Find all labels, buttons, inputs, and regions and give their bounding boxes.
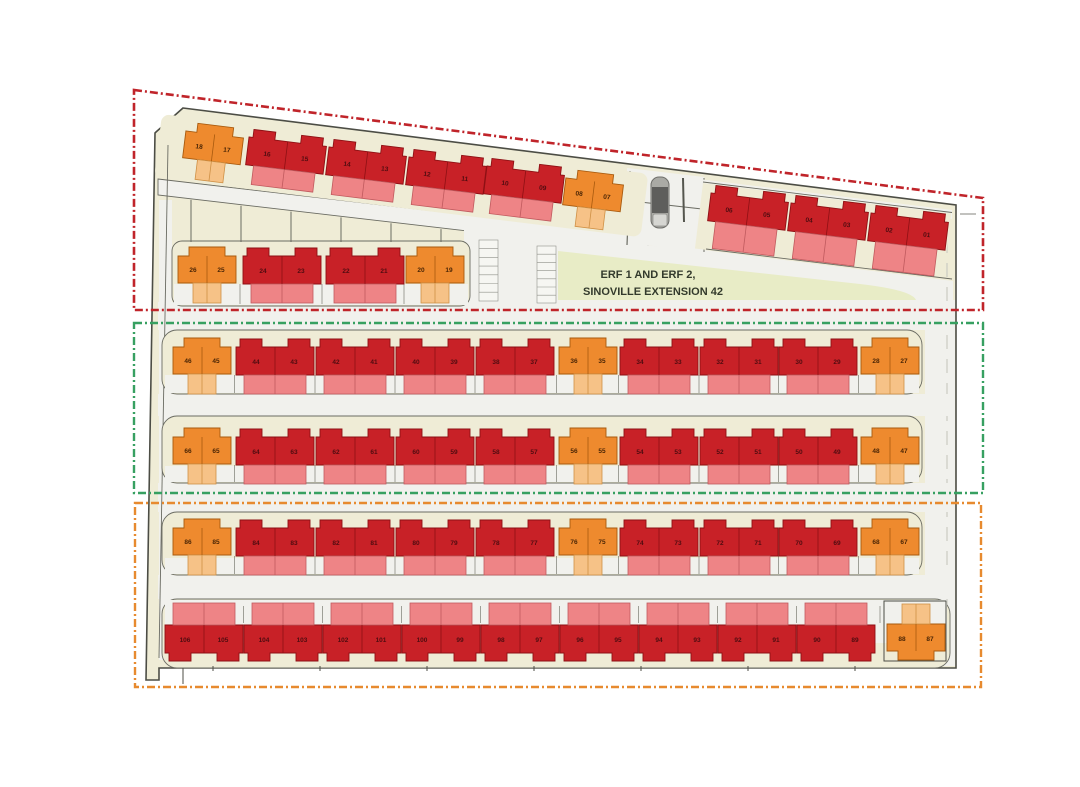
svg-text:25: 25 <box>217 267 225 274</box>
svg-text:47: 47 <box>900 448 908 455</box>
svg-text:64: 64 <box>252 449 260 456</box>
svg-text:33: 33 <box>674 359 682 366</box>
svg-text:20: 20 <box>417 267 425 274</box>
svg-text:51: 51 <box>754 449 762 456</box>
svg-text:79: 79 <box>450 540 458 547</box>
svg-text:22: 22 <box>342 268 350 275</box>
svg-text:50: 50 <box>795 449 803 456</box>
svg-text:46: 46 <box>184 358 192 365</box>
svg-text:48: 48 <box>872 448 880 455</box>
svg-text:32: 32 <box>716 359 724 366</box>
svg-text:21: 21 <box>380 268 388 275</box>
svg-text:69: 69 <box>833 540 841 547</box>
svg-text:90: 90 <box>813 637 821 644</box>
svg-text:86: 86 <box>184 539 192 546</box>
svg-text:28: 28 <box>872 358 880 365</box>
svg-text:72: 72 <box>716 540 724 547</box>
svg-text:24: 24 <box>259 268 267 275</box>
svg-text:83: 83 <box>290 540 298 547</box>
svg-text:65: 65 <box>212 448 220 455</box>
svg-text:60: 60 <box>412 449 420 456</box>
svg-text:61: 61 <box>370 449 378 456</box>
svg-text:100: 100 <box>417 637 428 644</box>
svg-text:16: 16 <box>263 151 271 159</box>
svg-text:76: 76 <box>570 539 578 546</box>
svg-text:75: 75 <box>598 539 606 546</box>
svg-text:11: 11 <box>461 176 469 184</box>
svg-text:26: 26 <box>189 267 197 274</box>
svg-text:07: 07 <box>603 194 611 202</box>
svg-text:27: 27 <box>900 358 908 365</box>
svg-text:34: 34 <box>636 359 644 366</box>
svg-text:36: 36 <box>570 358 578 365</box>
svg-text:94: 94 <box>655 637 663 644</box>
svg-text:98: 98 <box>497 637 505 644</box>
svg-text:08: 08 <box>575 190 583 198</box>
svg-text:88: 88 <box>898 636 906 643</box>
svg-text:67: 67 <box>900 539 908 546</box>
svg-text:104: 104 <box>259 637 270 644</box>
svg-text:14: 14 <box>343 161 351 169</box>
svg-text:58: 58 <box>492 449 500 456</box>
svg-text:03: 03 <box>843 221 851 229</box>
svg-text:52: 52 <box>716 449 724 456</box>
svg-text:85: 85 <box>212 539 220 546</box>
svg-text:77: 77 <box>530 540 538 547</box>
svg-text:101: 101 <box>376 637 387 644</box>
svg-text:87: 87 <box>926 636 934 643</box>
svg-text:41: 41 <box>370 359 378 366</box>
svg-text:35: 35 <box>598 358 606 365</box>
svg-text:92: 92 <box>734 637 742 644</box>
svg-text:15: 15 <box>301 155 309 163</box>
svg-text:68: 68 <box>872 539 880 546</box>
svg-text:09: 09 <box>539 184 547 192</box>
svg-text:40: 40 <box>412 359 420 366</box>
svg-text:73: 73 <box>674 540 682 547</box>
svg-text:103: 103 <box>297 637 308 644</box>
svg-text:ERF 1 AND ERF 2,: ERF 1 AND ERF 2, <box>601 269 696 281</box>
svg-text:81: 81 <box>370 540 378 547</box>
svg-text:42: 42 <box>332 359 340 366</box>
svg-text:96: 96 <box>576 637 584 644</box>
svg-text:55: 55 <box>598 448 606 455</box>
svg-text:89: 89 <box>851 637 859 644</box>
svg-text:SINOVILLE EXTENSION 42: SINOVILLE EXTENSION 42 <box>583 286 723 298</box>
svg-text:62: 62 <box>332 449 340 456</box>
svg-text:102: 102 <box>338 637 349 644</box>
svg-text:57: 57 <box>530 449 538 456</box>
svg-text:91: 91 <box>772 637 780 644</box>
svg-text:106: 106 <box>180 637 191 644</box>
svg-text:99: 99 <box>456 637 464 644</box>
svg-text:05: 05 <box>763 211 771 219</box>
svg-text:93: 93 <box>693 637 701 644</box>
svg-text:04: 04 <box>805 217 813 225</box>
svg-text:70: 70 <box>795 540 803 547</box>
svg-text:37: 37 <box>530 359 538 366</box>
svg-text:30: 30 <box>795 359 803 366</box>
svg-text:66: 66 <box>184 448 192 455</box>
svg-text:53: 53 <box>674 449 682 456</box>
svg-text:54: 54 <box>636 449 644 456</box>
svg-text:84: 84 <box>252 540 260 547</box>
svg-text:12: 12 <box>423 171 431 179</box>
svg-text:17: 17 <box>223 147 231 155</box>
svg-text:44: 44 <box>252 359 260 366</box>
svg-text:82: 82 <box>332 540 340 547</box>
svg-text:29: 29 <box>833 359 841 366</box>
svg-text:74: 74 <box>636 540 644 547</box>
svg-text:02: 02 <box>885 227 893 235</box>
svg-text:23: 23 <box>297 268 305 275</box>
svg-text:80: 80 <box>412 540 420 547</box>
svg-text:97: 97 <box>535 637 543 644</box>
svg-text:01: 01 <box>923 231 931 239</box>
svg-text:45: 45 <box>212 358 220 365</box>
svg-text:63: 63 <box>290 449 298 456</box>
svg-text:13: 13 <box>381 165 389 173</box>
svg-text:49: 49 <box>833 449 841 456</box>
svg-text:19: 19 <box>445 267 453 274</box>
svg-text:38: 38 <box>492 359 500 366</box>
svg-text:78: 78 <box>492 540 500 547</box>
svg-text:39: 39 <box>450 359 458 366</box>
svg-text:18: 18 <box>195 143 203 151</box>
svg-text:10: 10 <box>501 180 509 188</box>
svg-text:59: 59 <box>450 449 458 456</box>
svg-text:06: 06 <box>725 207 733 215</box>
svg-text:56: 56 <box>570 448 578 455</box>
svg-text:71: 71 <box>754 540 762 547</box>
svg-text:95: 95 <box>614 637 622 644</box>
svg-text:43: 43 <box>290 359 298 366</box>
svg-text:31: 31 <box>754 359 762 366</box>
svg-text:105: 105 <box>218 637 229 644</box>
